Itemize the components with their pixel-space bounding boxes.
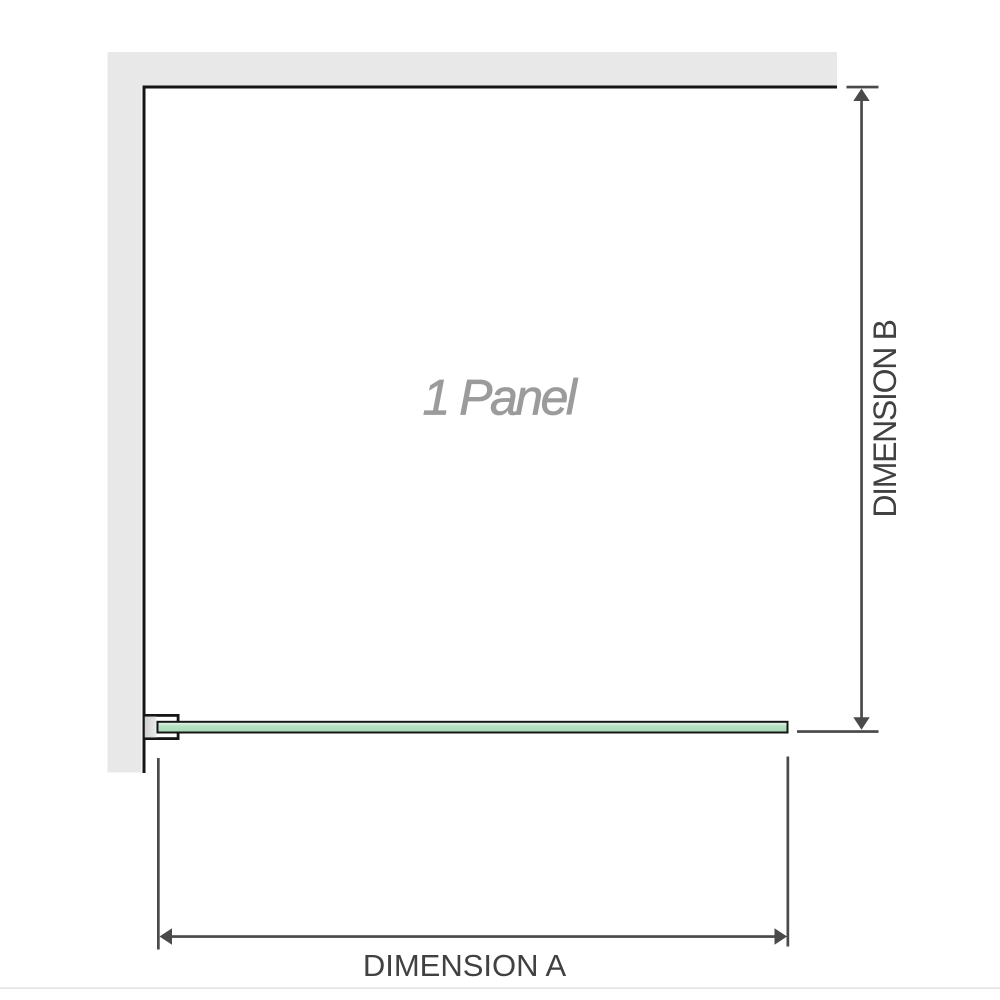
svg-text:DIMENSION B: DIMENSION B [867,320,903,517]
svg-text:1 Panel: 1 Panel [422,370,578,426]
svg-text:DIMENSION A: DIMENSION A [363,948,567,983]
